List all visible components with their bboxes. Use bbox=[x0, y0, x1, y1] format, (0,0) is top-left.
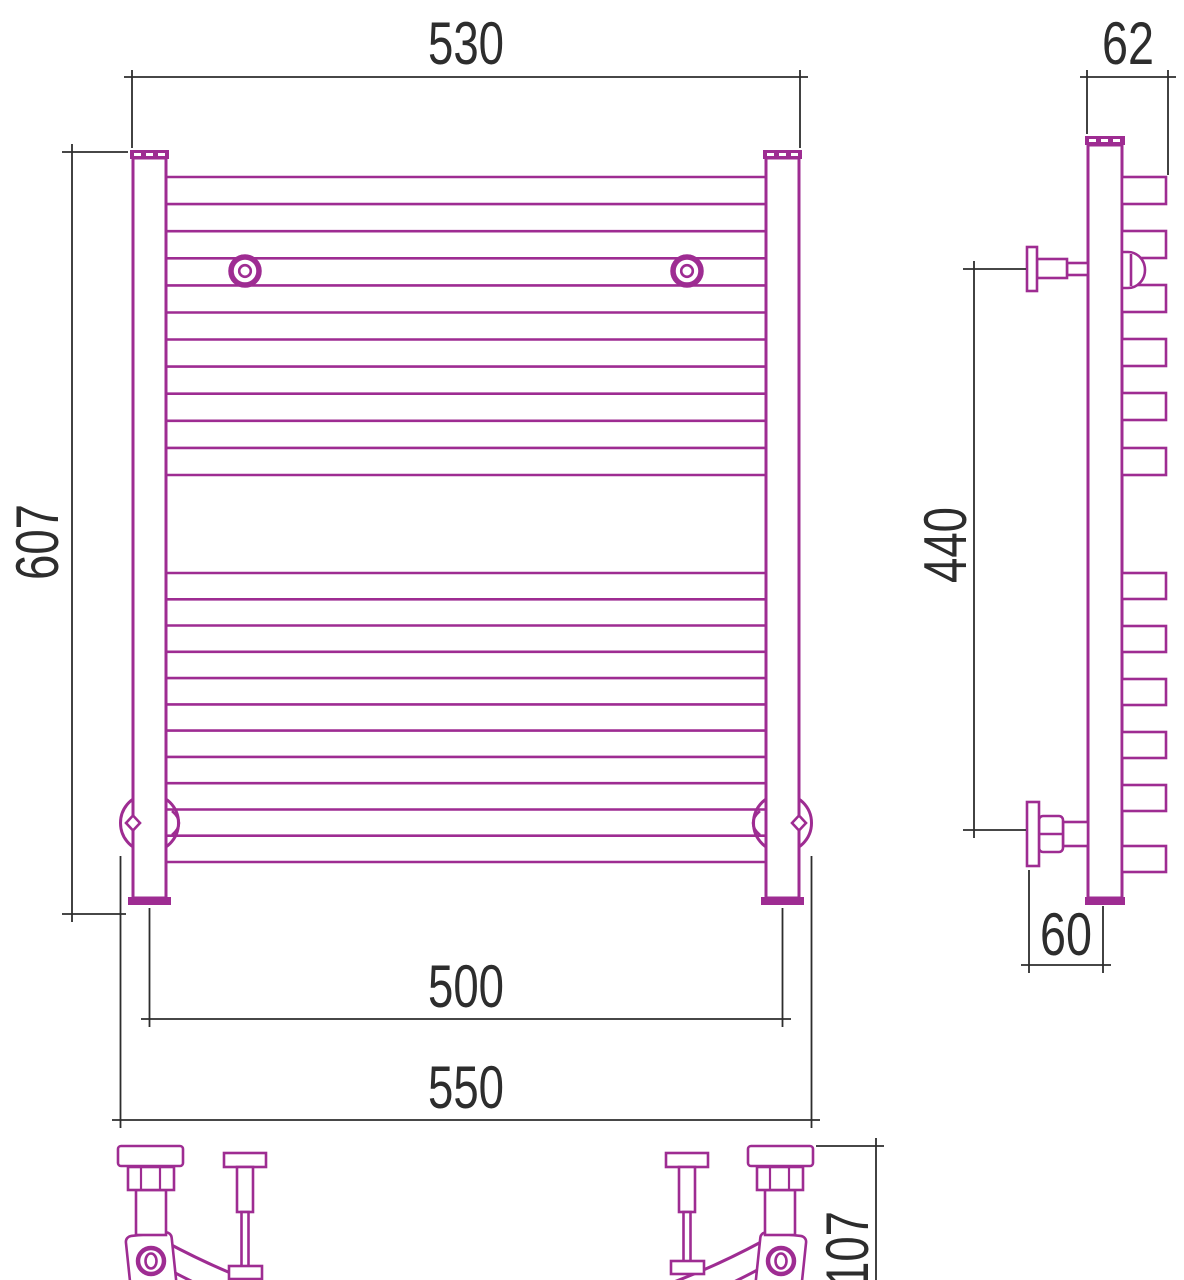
side-post bbox=[1088, 145, 1122, 898]
front-upper-bracket-left bbox=[231, 257, 259, 285]
side-upper-wall-bracket bbox=[1027, 247, 1088, 291]
dimension-label-440: 440 bbox=[912, 507, 979, 583]
front-upper-rungs bbox=[166, 177, 766, 475]
dimension-label-500: 500 bbox=[428, 953, 504, 1020]
side-lower-valve-fitting bbox=[1027, 802, 1088, 866]
bottom-wall-bracket-right bbox=[666, 1153, 708, 1274]
dimension-label-107: 107 bbox=[814, 1211, 881, 1280]
side-upper-bracket-cap bbox=[1122, 252, 1145, 288]
bottom-corner-valve-right bbox=[748, 1146, 813, 1280]
front-left-post-bottom-cap bbox=[128, 897, 171, 905]
drawing-canvas: 530 607 500 550 bbox=[0, 0, 1184, 1280]
front-left-post bbox=[133, 158, 166, 898]
dimension-label-60: 60 bbox=[1040, 901, 1092, 968]
front-view-drawing bbox=[121, 150, 812, 905]
front-upper-bracket-right bbox=[673, 257, 701, 285]
dimension-label-607: 607 bbox=[4, 504, 71, 580]
technical-drawing: 530 607 500 550 bbox=[0, 0, 1184, 1280]
dimension-label-530: 530 bbox=[428, 10, 504, 77]
front-right-post bbox=[766, 158, 799, 898]
front-lower-rungs bbox=[166, 573, 766, 862]
bottom-wall-bracket-left bbox=[224, 1153, 266, 1279]
dimension-label-62: 62 bbox=[1102, 10, 1154, 77]
dimension-label-550: 550 bbox=[428, 1054, 504, 1121]
bottom-view-drawing bbox=[118, 1146, 813, 1280]
side-view-drawing bbox=[1027, 136, 1166, 905]
bottom-corner-valve-left bbox=[118, 1146, 183, 1280]
front-right-post-bottom-cap bbox=[761, 897, 804, 905]
